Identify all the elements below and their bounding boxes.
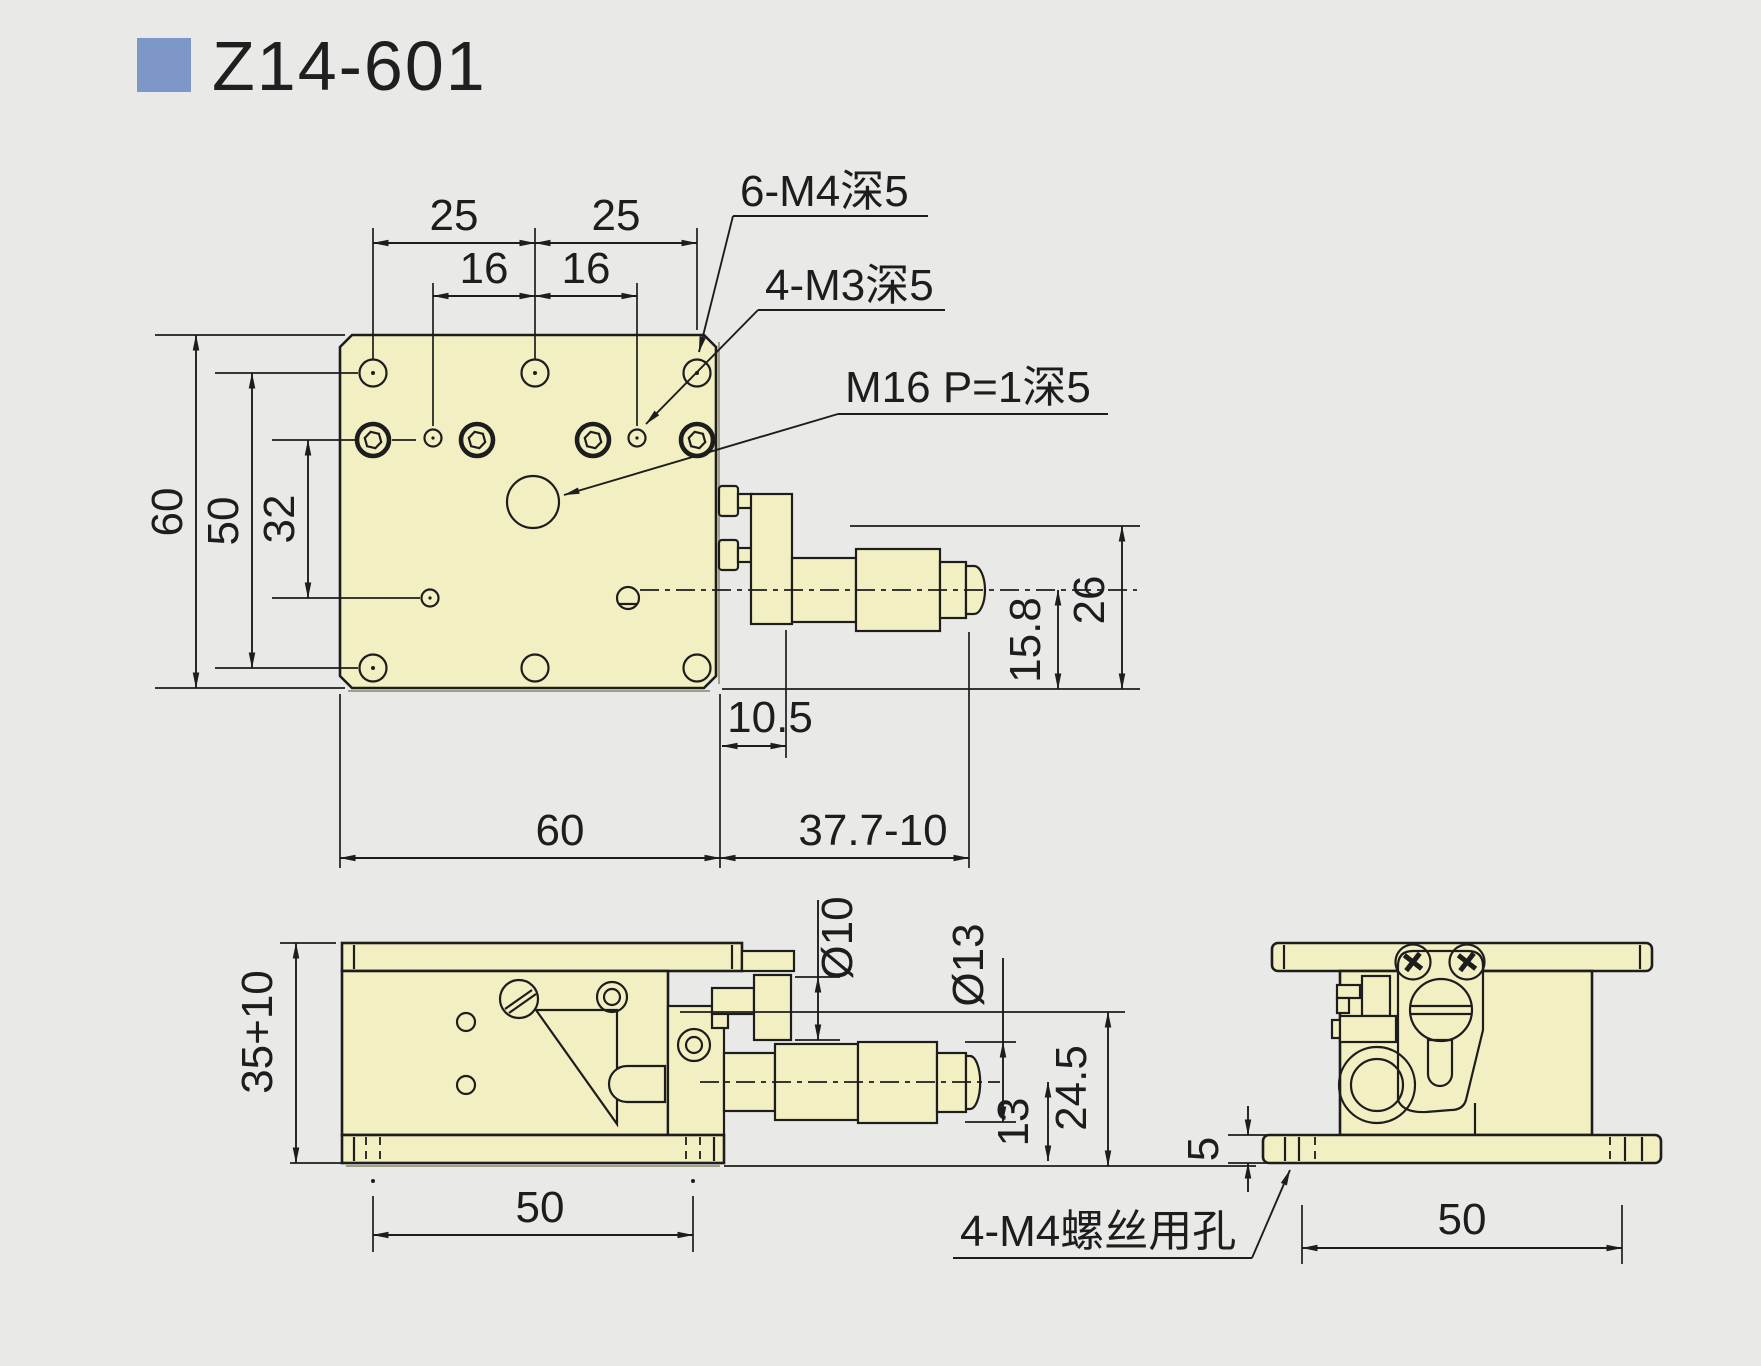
dim-text: 5 (1179, 1137, 1228, 1161)
dim-text: 24.5 (1047, 1045, 1096, 1131)
micrometer-plan (719, 486, 985, 631)
dim-text: 35+10 (233, 970, 282, 1094)
dim-50-end: 50 (1302, 1195, 1622, 1264)
moving-table (342, 943, 742, 971)
dim-text: 26 (1065, 576, 1114, 625)
dim-text: 10.5 (727, 693, 813, 742)
title-marker (137, 38, 191, 92)
side-view: 35+10 Ø10 Ø13 13 24.5 (233, 896, 1256, 1252)
base-plate-end (1263, 1135, 1661, 1163)
dim-text: Ø10 (813, 896, 862, 979)
clamp-knob (754, 975, 791, 1040)
dim-text: 13 (989, 1098, 1038, 1147)
clamp-block (751, 494, 792, 624)
dim-text: 50 (1438, 1195, 1487, 1244)
dim-5: 5 (1179, 1106, 1270, 1192)
dim-text: 15.8 (1001, 597, 1050, 683)
title-block: Z14-601 (137, 27, 487, 105)
page-title: Z14-601 (212, 27, 487, 105)
stage-top-plate (340, 335, 716, 688)
label-6-m4: 6-M4深5 (699, 167, 928, 352)
dim-text: 60 (143, 488, 192, 537)
dim-text: Ø13 (944, 923, 993, 1006)
dim-text: 32 (255, 495, 304, 544)
dim-13: 13 (989, 1082, 1048, 1161)
dim-text: 60 (536, 806, 585, 855)
roller-block (609, 1066, 665, 1102)
label-4-m4: 4-M4螺丝用孔 (953, 1170, 1290, 1258)
dim-text: 50 (516, 1183, 565, 1232)
dim-text: 16 (562, 244, 611, 293)
knob-edge (1362, 976, 1390, 1016)
dim-50-side: 50 (371, 1179, 695, 1252)
dim-text: 37.7-10 (798, 806, 947, 855)
dim-text: 25 (592, 191, 641, 240)
dim-text: 50 (199, 497, 248, 546)
label-text: M16 P=1深5 (845, 363, 1091, 412)
dim-dia10: Ø10 (795, 896, 862, 1040)
dim-35-10: 35+10 (233, 943, 342, 1163)
dim-text: 25 (430, 191, 479, 240)
dim-text: 16 (460, 244, 509, 293)
label-text: 6-M4深5 (740, 167, 909, 216)
top-view: 25 25 16 16 60 50 32 (143, 167, 1140, 868)
base-plate (342, 1135, 724, 1163)
technical-drawing: Z14-601 (0, 0, 1761, 1366)
label-text: 4-M4螺丝用孔 (960, 1207, 1236, 1256)
label-text: 4-M3深5 (765, 261, 934, 310)
